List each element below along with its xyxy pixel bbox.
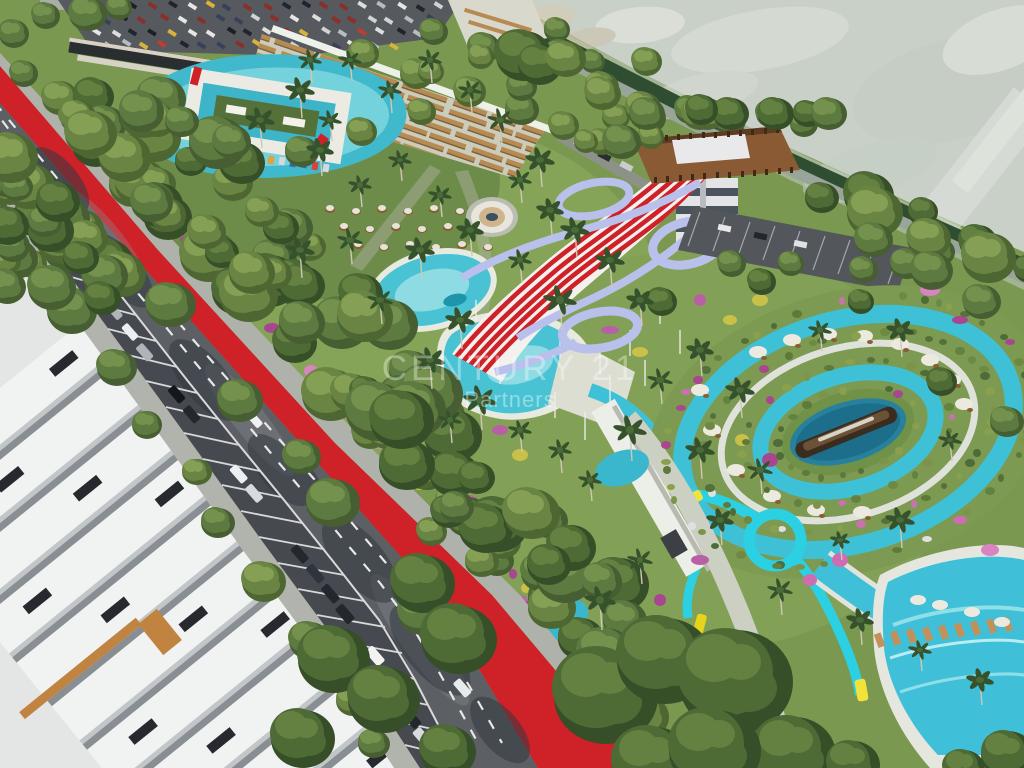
svg-text:CENTURY 21: CENTURY 21 [382,349,639,388]
svg-text:Partners: Partners [464,387,555,412]
